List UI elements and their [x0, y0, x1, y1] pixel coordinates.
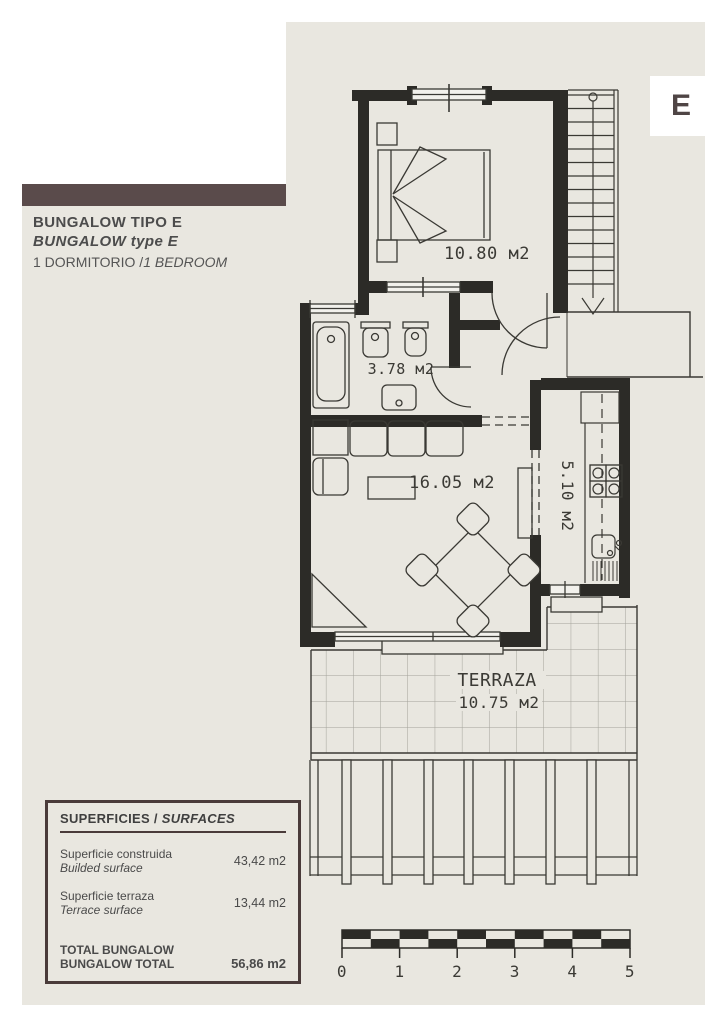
svg-text:1: 1 — [395, 962, 405, 981]
vanity-sink — [382, 385, 416, 410]
plan-sheet: BUNGALOW TIPO E BUNGALOW type E 1 DORMIT… — [0, 0, 724, 1024]
kitchen-window — [550, 581, 580, 598]
kitchen-fixtures — [581, 392, 622, 583]
scale-numbers: 0 1 2 3 4 5 — [337, 962, 635, 981]
dining-set — [404, 501, 543, 640]
table-row: Superficie terraza Terrace surface 13,44… — [60, 889, 286, 917]
terrace-surface-value: 13,44 m2 — [234, 896, 286, 910]
bidet — [403, 322, 428, 356]
drainer — [593, 561, 617, 581]
cupboard — [518, 468, 532, 538]
terrace-area-label: 10.75 м2 — [458, 693, 539, 712]
chair — [455, 501, 492, 538]
bathtub — [313, 322, 349, 408]
bed — [378, 147, 490, 243]
stove — [590, 465, 622, 497]
nightstand — [377, 123, 397, 145]
washbasin — [361, 322, 390, 357]
table-total-row: TOTAL BUNGALOW BUNGALOW TOTAL 56,86 m2 — [60, 943, 286, 971]
scale-bar: 0 1 2 3 4 5 — [337, 930, 635, 981]
bedroom-area-label: 10.80 м2 — [444, 244, 530, 264]
kitchen-step — [551, 597, 602, 612]
total-value: 56,86 m2 — [231, 956, 286, 971]
kitchen-area-label: 5.10 м2 — [558, 461, 577, 532]
svg-text:0: 0 — [337, 962, 347, 981]
svg-text:5: 5 — [625, 962, 635, 981]
living-furniture — [312, 420, 542, 639]
dining-table — [431, 528, 515, 612]
living-area-label: 16.05 м2 — [409, 473, 495, 493]
surfaces-table-header: SUPERFICIES / SURFACES — [60, 811, 286, 833]
entrance-landing — [567, 312, 703, 377]
table-row: Superficie construida Builded surface 43… — [60, 847, 286, 875]
svg-text:2: 2 — [452, 962, 462, 981]
svg-text:3: 3 — [510, 962, 520, 981]
surfaces-table: SUPERFICIES / SURFACES Superficie constr… — [45, 800, 301, 984]
bathroom-door — [431, 367, 471, 407]
corner-unit — [312, 574, 366, 627]
stairs — [568, 90, 618, 314]
bedroom-furniture — [377, 123, 490, 262]
chair — [404, 552, 441, 589]
armchair — [313, 458, 348, 495]
bedroom-window — [412, 84, 486, 112]
terrace-step — [382, 640, 503, 654]
built-surface-value: 43,42 m2 — [234, 854, 286, 868]
bathroom-window — [310, 300, 355, 318]
nightstand — [377, 240, 397, 262]
coffee-table — [368, 477, 415, 499]
svg-text:4: 4 — [567, 962, 577, 981]
terrace-name-label: TERRAZA — [457, 670, 536, 691]
kitchen-cabinet — [581, 392, 619, 423]
bathroom-area-label: 3.78 м2 — [368, 360, 435, 378]
pergola — [310, 760, 637, 884]
pergola-beams — [342, 760, 596, 884]
kitchen-sink — [592, 535, 622, 558]
